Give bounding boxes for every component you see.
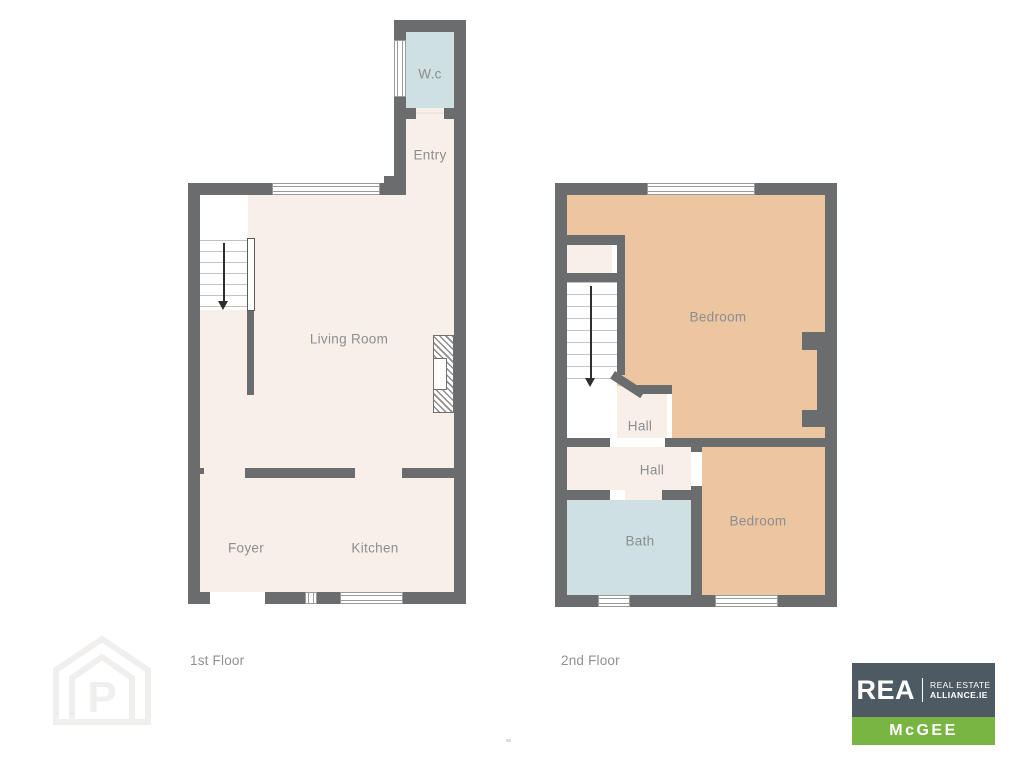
rea-tagline: REAL ESTATE ALLIANCE.IE — [930, 680, 990, 701]
chimney-breast — [802, 410, 825, 427]
floor-plan-canvas: W.c Entry Living Room Foyer Kitchen 1st … — [0, 0, 1023, 768]
watermark-logo: P — [46, 628, 158, 730]
wall — [825, 195, 837, 607]
stairs — [567, 282, 617, 390]
wall — [555, 183, 647, 195]
wall — [662, 490, 691, 500]
wall — [567, 490, 610, 500]
window — [598, 595, 630, 607]
wall — [555, 195, 567, 607]
chimney-breast — [802, 332, 825, 350]
chimney-breast — [817, 350, 825, 410]
rea-office-name: McGEE — [889, 722, 958, 740]
logo-divider — [922, 678, 923, 702]
door-opening — [667, 394, 672, 438]
room-label-bath: Bath — [626, 534, 655, 549]
wall — [555, 595, 598, 607]
window — [647, 183, 755, 195]
floor-label-2nd: 2nd Floor — [561, 653, 620, 668]
rea-logo-top: REA REAL ESTATE ALLIANCE.IE — [852, 663, 995, 717]
hall-lower-floor — [567, 447, 693, 490]
wall — [617, 235, 625, 375]
stair-foot-landing — [567, 390, 617, 438]
bath-door-opening — [625, 490, 662, 500]
room-label-bedroom-rear: Bedroom — [730, 514, 787, 529]
door-opening — [610, 438, 625, 447]
wall — [755, 183, 837, 195]
wall — [567, 273, 617, 282]
rea-mcgee-logo: REA REAL ESTATE ALLIANCE.IE McGEE — [852, 663, 995, 745]
window — [715, 595, 778, 607]
room-label-bedroom-front: Bedroom — [690, 310, 747, 325]
page-mark — [506, 739, 511, 742]
door-opening — [610, 490, 625, 500]
watermark-letter: P — [87, 673, 116, 722]
rea-tagline-line2: ALLIANCE.IE — [930, 690, 990, 701]
door-opening — [691, 452, 702, 486]
stairs-down-arrowhead-icon — [585, 378, 595, 387]
rea-tagline-line1: REAL ESTATE — [930, 680, 990, 691]
wall — [630, 595, 715, 607]
room-label-hall-lower: Hall — [640, 463, 664, 478]
stair-head-landing — [567, 245, 612, 273]
rea-brand-text: REA — [857, 677, 916, 704]
wall — [665, 438, 837, 447]
wall — [567, 438, 610, 447]
wall — [637, 385, 672, 394]
room-label-hall-upper: Hall — [628, 419, 652, 434]
stairs-down-arrow-icon — [590, 286, 592, 378]
rea-office-band: McGEE — [852, 717, 995, 745]
wall — [778, 595, 837, 607]
